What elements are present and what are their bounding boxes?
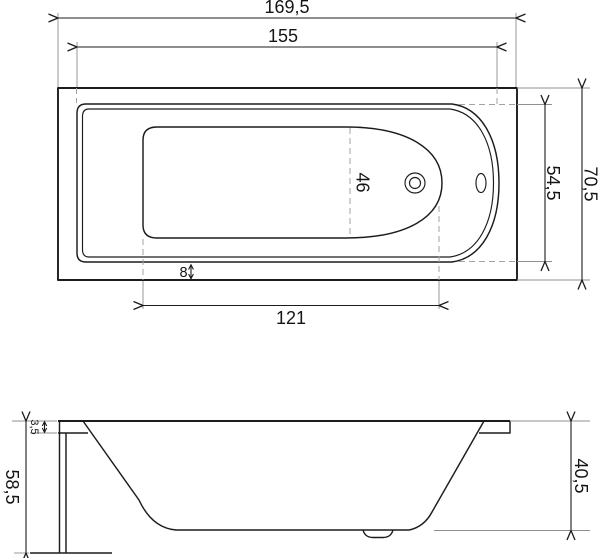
dim-label-rim-thickness: 3,5: [28, 419, 40, 434]
dim-label-depth-interior: 40,5: [571, 458, 591, 493]
dim-label-height-overall: 58,5: [2, 469, 22, 504]
rim-inner-line: [83, 109, 494, 257]
tub-outer-edge: [58, 88, 517, 280]
dim-label-length-rim: 155: [268, 26, 298, 46]
overflow-icon: [476, 174, 486, 193]
dim-label-width-overall: 70,5: [581, 166, 600, 201]
side-view: 3,5 58,5 40,5: [2, 419, 591, 553]
basin-outline: [143, 127, 442, 238]
technical-drawing-canvas: 169,5 155 121 46 8 54,5 70,5 3,5 58,5 40…: [0, 0, 600, 558]
apron-leg-panel: [60, 421, 67, 553]
drain-icon-inner: [410, 178, 421, 189]
interior-profile: [83, 421, 484, 530]
drain-icon: [405, 173, 425, 193]
bathtub-dimension-drawing: 169,5 155 121 46 8 54,5 70,5 3,5 58,5 40…: [0, 0, 600, 558]
dim-label-length-overall: 169,5: [264, 0, 309, 17]
dim-label-width-rim: 54,5: [543, 165, 563, 200]
dim-label-apron-offset: 8: [179, 265, 187, 281]
drain-bump: [363, 530, 393, 538]
top-view: 169,5 155 121 46 8 54,5 70,5: [58, 0, 600, 328]
dim-label-width-interior: 46: [353, 172, 373, 192]
dim-label-length-bottom: 121: [276, 308, 306, 328]
